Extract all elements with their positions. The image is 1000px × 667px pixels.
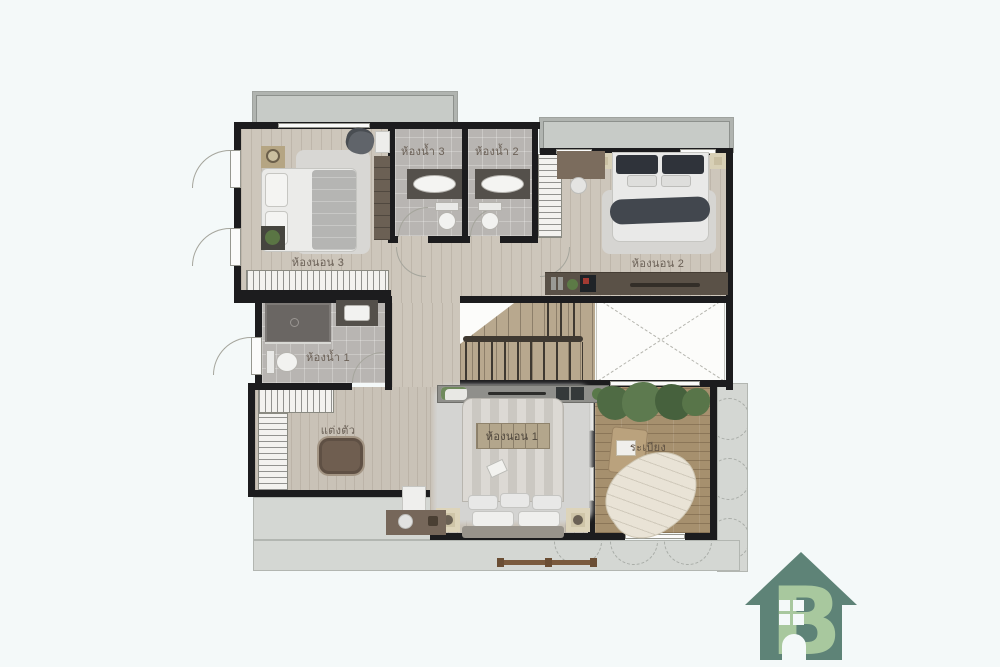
bedroom-1-chair: [398, 514, 413, 529]
bedroom-3-blanket: [312, 170, 356, 250]
window: [230, 150, 241, 188]
room-label-bathroom-1: ห้องน้ำ 1: [306, 348, 350, 366]
window-band: [589, 467, 594, 501]
bedroom-2-nightstand: [710, 153, 726, 169]
hall-floor-lower: [392, 303, 460, 387]
room-label-dressing: แต่งตัว: [321, 421, 355, 439]
window: [230, 228, 241, 266]
bedroom-1-pillow: [532, 495, 562, 510]
console-handle: [630, 283, 700, 287]
wall-segment: [460, 296, 540, 303]
wall-segment: [532, 122, 538, 243]
wall-segment: [385, 303, 392, 390]
console-box: [571, 387, 584, 400]
wall-segment: [685, 533, 717, 540]
bedroom-1-lamp: [573, 515, 583, 525]
logo-window-pane: [779, 600, 790, 611]
room-label-balcony: ระเบียง: [630, 438, 666, 456]
wall-segment: [726, 148, 733, 390]
bedroom-3-cabinet: [374, 156, 390, 240]
wall-segment: [248, 383, 255, 497]
window-swing-arc: [192, 228, 230, 266]
bedroom-3-plant: [265, 230, 280, 245]
bedroom-2-pillow-small: [627, 175, 657, 187]
bathroom-2-toilet-bowl: [481, 212, 499, 230]
roof-arc: [717, 398, 748, 440]
balcony-plant: [682, 388, 710, 416]
dressing-wardrobe-top: [258, 389, 334, 413]
bathroom-1-toilet-tank: [266, 350, 275, 374]
bedroom-3-lamp: [266, 149, 280, 163]
bathroom-1-toilet-bowl: [276, 352, 298, 372]
railing-post: [545, 558, 552, 567]
console-bottle: [558, 277, 563, 290]
logo-door: [782, 634, 806, 660]
console-bottle: [551, 277, 556, 290]
bedroom-2-throw-blanket: [610, 196, 711, 224]
bedroom-2-pillow: [616, 155, 658, 174]
bedroom-2-pillow: [662, 155, 704, 174]
wall-segment: [710, 383, 717, 540]
bathroom-1-shower-glass: [265, 342, 331, 344]
canopy-slab-top-right: [540, 118, 733, 152]
desk-item: [428, 516, 438, 526]
railing-post: [497, 558, 504, 567]
bedroom-1-pillow: [472, 511, 514, 527]
console-flowers: [441, 387, 467, 400]
bedroom-1-pillow: [468, 495, 498, 510]
window: [251, 337, 262, 375]
dressing-wardrobe-left: [258, 413, 288, 491]
void-open-to-below: [596, 298, 725, 382]
room-label-bathroom-2: ห้องน้ำ 2: [475, 142, 519, 160]
bathroom-3-sink: [413, 175, 456, 193]
wall-segment: [462, 122, 468, 236]
room-label-bedroom-2: ห้องนอน 2: [632, 254, 684, 272]
roof-arc: [664, 540, 712, 565]
bathroom-3-toilet-bowl: [438, 212, 456, 230]
house-b-logo-svg: B: [743, 548, 860, 667]
bathroom-2-toilet: [478, 202, 502, 211]
console-plant: [567, 279, 578, 290]
room-label-bathroom-3: ห้องน้ำ 3: [401, 142, 445, 160]
bedroom-2-desk: [557, 151, 605, 179]
wall-segment: [255, 383, 352, 390]
console-handle: [488, 392, 546, 395]
logo-window-pane: [793, 600, 804, 611]
wall-segment: [540, 296, 733, 303]
bathroom-3-toilet: [435, 202, 459, 211]
bedroom-3-monitor: [375, 131, 390, 153]
dressing-ottoman: [317, 436, 365, 476]
bedroom-2-pillow-small: [661, 175, 691, 187]
room-label-bedroom-3: ห้องนอน 3: [292, 253, 344, 271]
bathroom-2-sink: [481, 175, 524, 193]
roof-arc: [717, 458, 748, 500]
floor-plan-canvas: ห้องนอน 3 ห้องน้ำ 3 ห้องน้ำ 2 ห้องนอน 2 …: [0, 0, 1000, 667]
bedroom-1-duvet: [462, 398, 564, 502]
bedroom-2-chair: [570, 177, 587, 194]
logo-window-pane: [793, 614, 804, 625]
logo-window-pane: [779, 614, 790, 625]
wall-segment: [428, 236, 470, 243]
roof-arc: [610, 540, 658, 565]
house-b-logo: B: [743, 548, 860, 667]
window-swing-arc: [192, 150, 230, 188]
staircase-balusters: [465, 342, 583, 385]
bathroom-1-sink: [344, 305, 370, 321]
bathroom-1-shower-drain: [290, 318, 299, 327]
staircase-railing: [463, 336, 583, 342]
bedroom-1-headboard: [462, 526, 564, 538]
wall-segment: [595, 533, 625, 540]
bedroom-3-pillow: [265, 173, 288, 207]
window-swing-arc: [213, 337, 251, 375]
bedroom-1-cabinet: [402, 486, 426, 512]
staircase-balusters-upper: [547, 300, 583, 336]
bedroom-1-pillow: [500, 493, 530, 508]
room-label-bedroom-1: ห้องนอน 1: [486, 427, 538, 445]
wall-segment: [500, 236, 538, 243]
bedroom-1-pillow: [518, 511, 560, 527]
railing-post: [590, 558, 597, 567]
console-picture-accent: [583, 278, 589, 284]
